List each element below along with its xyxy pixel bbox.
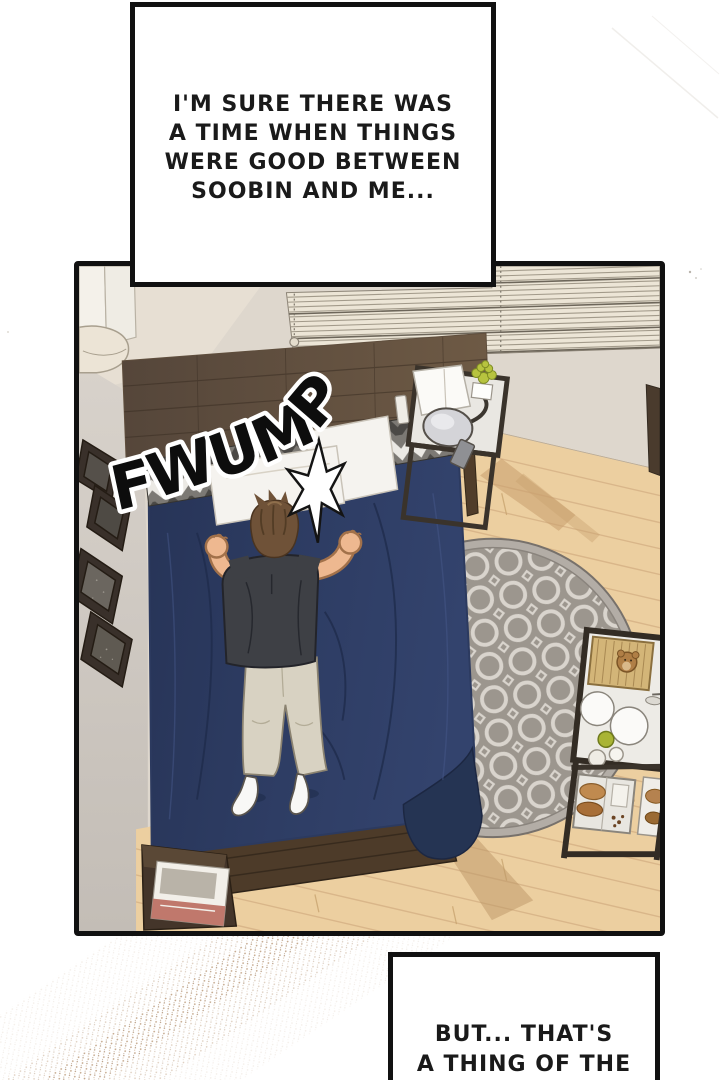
- bread-tray: [573, 774, 635, 833]
- cup: [609, 747, 624, 762]
- magazine: [151, 861, 229, 926]
- right-fist: [340, 532, 362, 554]
- plant-pot: [471, 383, 492, 400]
- comic-panel: FWUMP: [74, 261, 665, 936]
- foot-nightstand: [142, 845, 236, 930]
- left-fist: [206, 536, 228, 558]
- narration-box-bottom: BUT... THAT'S A THING OF THE: [388, 952, 660, 1080]
- narration-bottom-text: BUT... THAT'S A THING OF THE: [417, 1020, 631, 1080]
- basket-with-teddy: [588, 637, 654, 691]
- narration-box-top: I'M SURE THERE WAS A TIME WHEN THINGS WE…: [130, 2, 496, 287]
- webtoon-page: FWUMP I'M SURE THERE WAS A TIME WHEN THI…: [0, 0, 720, 1080]
- blind-cord-knob: [290, 338, 299, 347]
- green-cup: [597, 731, 614, 748]
- narration-top-text: I'M SURE THERE WAS A TIME WHEN THINGS WE…: [165, 90, 462, 206]
